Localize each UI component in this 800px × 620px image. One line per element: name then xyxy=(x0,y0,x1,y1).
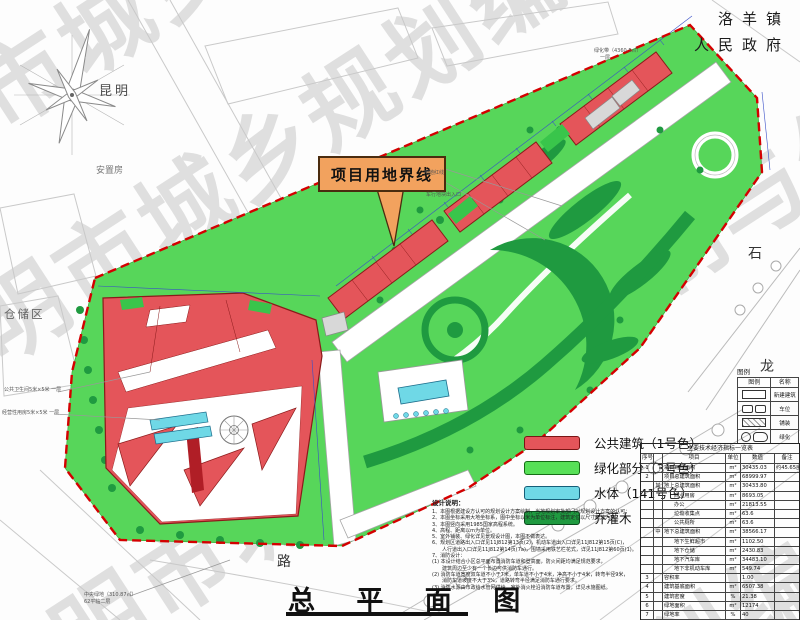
symbol-name: 车位 xyxy=(771,405,798,413)
legend-symbol-icon xyxy=(742,418,766,427)
site-plan-sheet: 昆明市城乡规划编制与信息中心 昆明市城乡规划编制与信息中心 昆明市城乡规划编制与… xyxy=(0,0,800,620)
cell-item: 地下汽车库 xyxy=(662,556,725,564)
road-name-char-lu: 路 xyxy=(277,551,291,571)
sheet-title-underline xyxy=(286,612,468,616)
header-no: 序号 xyxy=(641,454,653,463)
design-notes-title: 设计说明： xyxy=(432,497,640,507)
symbol-legend: 图例 图例 名称 新建建筑 车位 铺装 xyxy=(737,366,799,444)
annotation-red-line: 用地红线 xyxy=(424,170,444,177)
cell-group: 其 xyxy=(653,482,662,490)
cell-note xyxy=(774,492,799,500)
table-row: 其 地上总建筑面积 m² 30433.80 xyxy=(641,481,799,490)
annotation-central-green-2: 62平临二层 xyxy=(84,599,110,606)
cell-value: 68999.97 xyxy=(740,473,774,481)
cell-group xyxy=(653,501,662,509)
annotation-green-belt: 绿化带（4360.5㎡） xyxy=(594,48,642,55)
symbol-name: 绿化 xyxy=(771,433,798,441)
cell-item: 项目总建筑面积 xyxy=(662,473,725,481)
symbol-name: 铺装 xyxy=(771,419,798,427)
header-unit: 单位 xyxy=(725,454,740,463)
cell-item: 绿地面积 xyxy=(662,602,725,610)
cell-unit xyxy=(725,574,740,582)
cell-item: 地下总建筑面积 xyxy=(662,528,725,536)
cell-note xyxy=(774,611,799,619)
cell-value: 63.6 xyxy=(740,519,774,527)
cell-note xyxy=(774,538,799,546)
cell-note xyxy=(774,501,799,509)
indicator-table: 主要技术经济指标一览表 序号 项目 单位 数值 备注 1 项目用地面积 m² 3… xyxy=(640,443,800,620)
cell-unit: m² xyxy=(725,473,740,481)
table-row: 商业用房 m² 8693.05 xyxy=(641,491,799,500)
table-row: 7 绿地率 % 40 xyxy=(641,610,799,619)
cell-value: 34483.10 xyxy=(740,556,774,564)
cell-no: 6 xyxy=(641,602,653,610)
symbol-legend-row: 新建建筑 xyxy=(738,387,798,401)
indicator-table-title: 主要技术经济指标一览表 xyxy=(641,444,799,453)
cell-group xyxy=(653,611,662,619)
cell-note xyxy=(774,565,799,573)
cell-unit: m² xyxy=(725,565,740,573)
cell-item: 商业用房 xyxy=(662,492,725,500)
cell-item: 建筑密度 xyxy=(662,593,725,601)
annotation-public-toilet: 公共卫生间5米×5米 一层 xyxy=(4,387,61,394)
cell-item: 垃圾收集点 xyxy=(662,510,725,518)
cell-group xyxy=(653,583,662,591)
cell-value: 40 xyxy=(740,611,774,619)
cell-item: 建筑基底面积 xyxy=(662,583,725,591)
cell-value: 63.6 xyxy=(740,510,774,518)
cell-no xyxy=(641,547,653,555)
cell-group xyxy=(653,547,662,555)
cell-unit: m² xyxy=(725,519,740,527)
cell-value: 30435.03 xyxy=(740,464,774,472)
table-row: 5 建筑密度 % 21.38 xyxy=(641,592,799,601)
cell-no: 4 xyxy=(641,583,653,591)
cell-value: 21.38 xyxy=(740,593,774,601)
cell-value: 12174 xyxy=(740,602,774,610)
cell-unit: m² xyxy=(725,547,740,555)
legend-symbol-icon xyxy=(742,390,766,399)
table-row: 中 地下总建筑面积 m² 38566.17 xyxy=(641,527,799,536)
annotation-central-green: 中央绿地（310.87㎡） xyxy=(84,592,137,599)
cell-no xyxy=(641,501,653,509)
annotation-vehicle-entry: 车行地块出入口 xyxy=(426,192,461,199)
table-row: 3 容积率 1.00 xyxy=(641,573,799,582)
table-row: 地下非机动车库 m² 549.74 xyxy=(641,564,799,573)
cell-item: 公共厕所 xyxy=(662,519,725,527)
cell-no xyxy=(641,565,653,573)
cell-group: 中 xyxy=(653,528,662,536)
road-name-char-shi: 石 xyxy=(748,243,762,263)
cell-unit: m² xyxy=(725,556,740,564)
cell-no xyxy=(641,528,653,536)
cell-value: 8693.05 xyxy=(740,492,774,500)
cell-item: 容积率 xyxy=(662,574,725,582)
symbol-legend-row: 铺装 xyxy=(738,415,798,429)
cell-group xyxy=(653,602,662,610)
cell-note xyxy=(774,519,799,527)
cell-no xyxy=(641,519,653,527)
cell-item: 项目用地面积 xyxy=(662,464,725,472)
symbol-legend-row: 绿化 xyxy=(738,429,798,443)
cell-item: 地下生鲜超市 xyxy=(662,538,725,546)
header-value: 数值 xyxy=(740,454,774,463)
table-row: 公共厕所 m² 63.6 xyxy=(641,518,799,527)
table-row: 6 绿地面积 m² 12174 xyxy=(641,601,799,610)
annotation-commercial-room: 经营性用房5米×5米 一层 xyxy=(2,410,59,417)
header-note: 备注 xyxy=(774,454,799,463)
table-row: 地下生鲜超市 m² 1102.50 xyxy=(641,537,799,546)
agency-line-2: 人民政府 xyxy=(694,32,790,58)
name-col-header: 名称 xyxy=(771,378,798,387)
table-row: 办公 m² 21813.55 xyxy=(641,500,799,509)
cell-unit: m² xyxy=(725,538,740,546)
annotation-green-belt-2: 一层 xyxy=(600,55,610,62)
cell-item: 办公 xyxy=(662,501,725,509)
cell-note xyxy=(774,556,799,564)
cell-note xyxy=(774,528,799,536)
cell-group xyxy=(653,574,662,582)
warehouse-district-label: 仓储区 xyxy=(4,306,45,322)
cell-unit: % xyxy=(725,593,740,601)
legend-symbol-icon xyxy=(742,405,766,413)
cell-no: 1 xyxy=(641,464,653,472)
cell-unit: % xyxy=(725,611,740,619)
table-row: 1 项目用地面积 m² 30435.03 约45.65亩 xyxy=(641,463,799,472)
cell-note: 约45.65亩 xyxy=(774,464,799,472)
cell-group xyxy=(653,565,662,573)
cell-no: 3 xyxy=(641,574,653,582)
cell-note xyxy=(774,602,799,610)
header-item: 项目 xyxy=(662,454,725,463)
cell-note xyxy=(774,547,799,555)
cell-no xyxy=(641,510,653,518)
cell-unit: m² xyxy=(725,482,740,490)
cell-group xyxy=(653,492,662,500)
symbol-legend-header: 图例 名称 xyxy=(738,378,798,387)
cell-no: 5 xyxy=(641,593,653,601)
cell-group xyxy=(653,538,662,546)
symbol-col-header: 图例 xyxy=(738,378,771,387)
cell-no: 2 xyxy=(641,473,653,481)
symbol-legend-title: 图例 xyxy=(737,366,799,376)
cell-unit: m² xyxy=(725,464,740,472)
symbol-legend-rows: 新建建筑 车位 铺装 绿化 xyxy=(738,387,798,443)
cell-no: 7 xyxy=(641,611,653,619)
note-line: 2、本图坐标采用大地坐标系，图中坐标以米为单位标注，建筑定位以尺寸标注为准。 xyxy=(432,515,640,521)
cell-note xyxy=(774,510,799,518)
symbol-name: 新建建筑 xyxy=(771,391,798,399)
cell-value: 2430.83 xyxy=(740,547,774,555)
city-label: 昆明 xyxy=(99,80,131,99)
indicator-table-rows: 1 项目用地面积 m² 30435.03 约45.65亩 2 项目总建筑面积 m… xyxy=(641,463,799,620)
cell-value: 549.74 xyxy=(740,565,774,573)
cell-value: 1102.50 xyxy=(740,538,774,546)
symbol-legend-row: 车位 xyxy=(738,401,798,415)
cell-group xyxy=(653,473,662,481)
cell-no xyxy=(641,482,653,490)
table-row: 4 建筑基底面积 m² 6507.38 xyxy=(641,582,799,591)
note-line: 6、规划区道路出入口详见11J812第13页(2)，机动车道出入口详见11J81… xyxy=(432,540,640,546)
cell-value: 38566.17 xyxy=(740,528,774,536)
cell-item: 地下仓储 xyxy=(662,547,725,555)
cell-no xyxy=(641,492,653,500)
cell-no xyxy=(641,538,653,546)
fountain-plaza-icon xyxy=(220,416,248,444)
cell-note xyxy=(774,473,799,481)
cell-note xyxy=(774,593,799,601)
cell-value: 6507.38 xyxy=(740,583,774,591)
cell-value: 30433.80 xyxy=(740,482,774,490)
cell-item: 地上总建筑面积 xyxy=(662,482,725,490)
cell-unit: m² xyxy=(725,602,740,610)
agency-line-1: 洛羊镇 xyxy=(694,6,790,32)
cell-unit: m² xyxy=(725,492,740,500)
cell-unit: m² xyxy=(725,583,740,591)
table-row: 垃圾收集点 m² 63.6 xyxy=(641,509,799,518)
cell-item: 地下非机动车库 xyxy=(662,565,725,573)
cell-unit: m² xyxy=(725,510,740,518)
cell-note xyxy=(774,583,799,591)
cell-group xyxy=(653,519,662,527)
public-building-blocks xyxy=(103,293,322,524)
cell-note xyxy=(774,574,799,582)
cell-value: 1.00 xyxy=(740,574,774,582)
table-row: 2 项目总建筑面积 m² 68999.97 xyxy=(641,472,799,481)
cell-item: 绿地率 xyxy=(662,611,725,619)
indicator-table-header: 序号 项目 单位 数值 备注 xyxy=(641,453,799,463)
legend-swatch xyxy=(524,436,580,450)
agency-name: 洛羊镇 人民政府 xyxy=(694,6,790,58)
design-notes: 设计说明： 1、本图根据建设方认可的规划设计方案绘制，当地规划审批部门对规划设计… xyxy=(432,497,640,591)
header-group xyxy=(653,454,662,463)
cell-group xyxy=(653,593,662,601)
cell-group xyxy=(653,510,662,518)
legend-swatch xyxy=(524,461,580,475)
cell-unit: m² xyxy=(725,501,740,509)
cell-unit: m² xyxy=(725,528,740,536)
cell-note xyxy=(774,482,799,490)
table-row: 地下汽车库 m² 34483.10 xyxy=(641,555,799,564)
table-row: 地下仓储 m² 2430.83 xyxy=(641,546,799,555)
cell-group xyxy=(653,556,662,564)
cell-group xyxy=(653,464,662,472)
cell-no xyxy=(641,556,653,564)
resettlement-housing-label: 安置房 xyxy=(96,163,123,176)
legend-symbol-icon xyxy=(741,432,768,442)
cell-value: 21813.55 xyxy=(740,501,774,509)
